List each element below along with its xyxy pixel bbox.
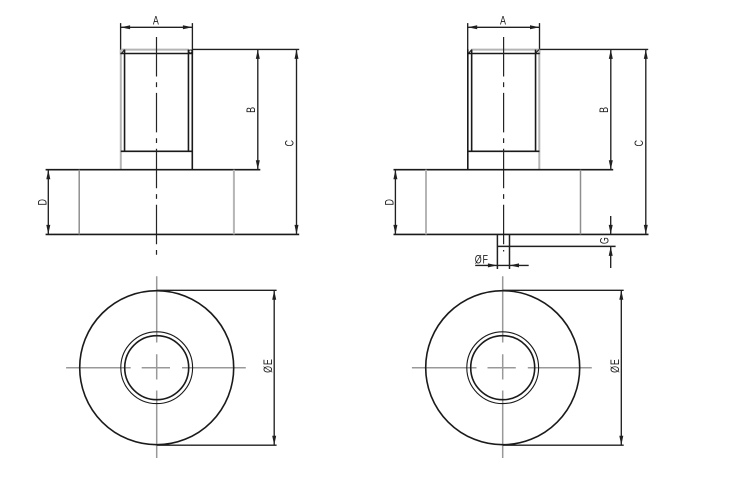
svg-text:C: C <box>634 140 646 147</box>
svg-text:D: D <box>37 199 49 205</box>
svg-text:A: A <box>500 15 506 27</box>
svg-text:Ø E: Ø E <box>263 359 275 373</box>
svg-text:C: C <box>285 140 297 147</box>
svg-text:A: A <box>153 15 159 27</box>
svg-text:B: B <box>599 107 611 113</box>
svg-text:Ø E: Ø E <box>610 359 622 373</box>
svg-text:D: D <box>384 199 396 205</box>
svg-text:G: G <box>599 237 611 244</box>
svg-text:Ø F: Ø F <box>475 255 488 267</box>
svg-text:B: B <box>246 107 258 113</box>
